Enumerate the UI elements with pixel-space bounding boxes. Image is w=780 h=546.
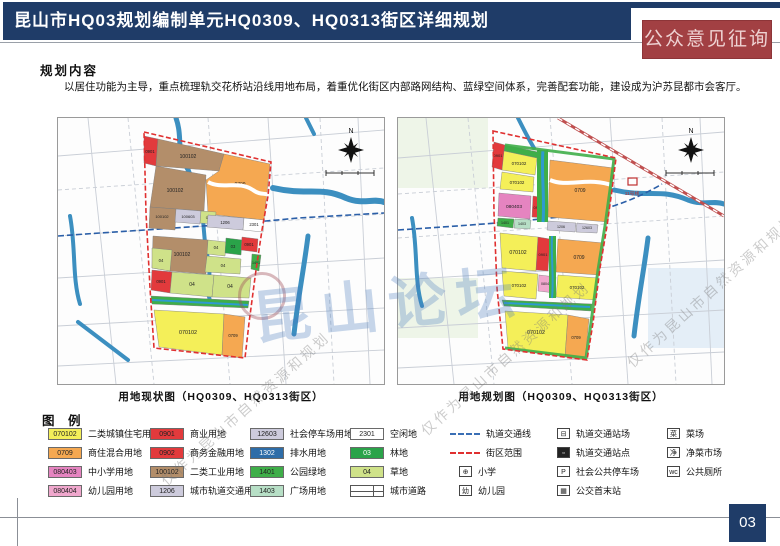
parcel-code: 100102	[174, 252, 191, 258]
legend-item: 幼幼儿园	[450, 481, 531, 500]
legend-label: 轨道交通线	[486, 427, 531, 440]
legend-item: 03林地	[350, 443, 426, 462]
footer-tick	[17, 498, 18, 546]
parcel-code: 070102	[509, 250, 526, 256]
legend-item: 080403中小学用地	[48, 462, 160, 481]
parcel-code: 1403	[518, 222, 526, 226]
parcel-code: 100102	[167, 188, 184, 194]
parcel-code: 080403	[506, 204, 522, 210]
parcel-code: 2301	[249, 222, 259, 227]
legend-item: 2301空闲地	[350, 424, 426, 443]
轨道交通站场-icon: ⊟	[557, 428, 570, 439]
legend-item: ⊕小学	[450, 462, 531, 481]
legend-label: 公交首末站	[576, 484, 621, 497]
parcel-code: 0901	[145, 149, 155, 154]
legend-label: 公共厕所	[686, 465, 722, 478]
legend-label: 社会停车场用地	[290, 427, 353, 440]
legend-label: 林地	[390, 446, 408, 459]
legend-item: ⊟轨道交通站场	[548, 424, 639, 443]
legend-column: ⊟轨道交通站场▫轨道交通站点P社会公共停车场▦公交首末站	[548, 424, 639, 500]
parcel-code: 0709	[573, 255, 584, 261]
section-title: 规划内容	[40, 60, 98, 79]
legend-swatch: 03	[350, 447, 384, 459]
landuse-current-map: 0901100102070910010210010210060304120623…	[57, 117, 385, 385]
parcel-code: 070102	[570, 285, 585, 290]
legend-swatch: 080403	[48, 466, 82, 478]
parcel-code: 070102	[179, 330, 197, 336]
north-label: N	[348, 128, 353, 135]
parcel-code: 04	[221, 263, 226, 268]
parcel-code: 1206	[220, 220, 230, 225]
legend-column: 2301空闲地03林地04草地城市道路	[350, 424, 426, 500]
legend-label: 中小学用地	[88, 465, 133, 478]
header-top-strip	[631, 2, 780, 8]
scale-bar	[326, 170, 374, 176]
legend-item: 0709商住混合用地	[48, 443, 160, 462]
rail-line-symbol	[450, 433, 480, 435]
legend-label: 商住混合用地	[88, 446, 142, 459]
legend-label: 空闲地	[390, 427, 417, 440]
parcel-code: 070102	[512, 283, 527, 288]
legend-item: 0901商业用地	[150, 424, 262, 443]
legend-swatch: 1206	[150, 485, 184, 497]
legend-item: ▦公交首末站	[548, 481, 639, 500]
legend-item: 070102二类城镇住宅用地	[48, 424, 160, 443]
parcel-code: 100102	[155, 214, 169, 219]
page-title: 昆山市HQ03规划编制单元HQ0309、HQ0313街区详细规划	[14, 2, 489, 40]
legend-item: 100102二类工业用地	[150, 462, 262, 481]
legend-column: 070102二类城镇住宅用地0709商住混合用地080403中小学用地08040…	[48, 424, 160, 500]
legend-label: 城市道路	[390, 484, 426, 497]
legend-swatch: 12603	[250, 428, 284, 440]
parcel-code: 0709	[574, 188, 585, 194]
parcel-code: 100603	[181, 214, 195, 219]
legend-label: 轨道交通站场	[576, 427, 630, 440]
parcel-code: 0901	[539, 252, 549, 257]
legend-swatch: 04	[350, 466, 384, 478]
parcel-code: 0901	[244, 242, 254, 247]
legend-swatch: 080404	[48, 485, 82, 497]
legend-label: 社会公共停车场	[576, 465, 639, 478]
legend-item: 净净菜市场	[658, 443, 722, 462]
footer-rule	[0, 517, 780, 518]
legend-item: 菜菜场	[658, 424, 722, 443]
legend-item: 12603社会停车场用地	[250, 424, 353, 443]
legend-label: 商业用地	[190, 427, 226, 440]
幼儿园-icon: 幼	[459, 485, 472, 496]
parcel-code: 0709	[571, 335, 581, 340]
public-comment-badge: 公众意见征询	[642, 20, 772, 59]
parcel-code: 1401	[501, 221, 509, 225]
legend-swatch: 0902	[150, 447, 184, 459]
legend-swatch: 1403	[250, 485, 284, 497]
page-number: 03	[729, 504, 766, 542]
legend-item: 1401公园绿地	[250, 462, 353, 481]
公共厕所-icon: wc	[667, 466, 680, 477]
legend-column: 0901商业用地0902商务金融用地100102二类工业用地1206城市轨道交通…	[150, 424, 262, 500]
legend-label: 街区范围	[486, 446, 522, 459]
legend-label: 幼儿园	[478, 484, 505, 497]
legend-swatch: 1302	[250, 447, 284, 459]
legend-item: 轨道交通线	[450, 424, 531, 443]
parcel-code: 1206	[557, 225, 565, 229]
legend-item: 街区范围	[450, 443, 531, 462]
小学-icon: ⊕	[459, 466, 472, 477]
社会公共停车场-icon: P	[557, 466, 570, 477]
legend-label: 排水用地	[290, 446, 326, 459]
legend-item: 1302排水用地	[250, 443, 353, 462]
metro-station-marker: 11号线	[625, 178, 640, 197]
parcel-code: 0709	[228, 333, 238, 338]
parcel-code: 100102	[180, 154, 197, 160]
legend-item: 0902商务金融用地	[150, 443, 262, 462]
公交首末站-icon: ▦	[557, 485, 570, 496]
legend-label: 公园绿地	[290, 465, 326, 478]
legend-swatch: 100102	[150, 466, 184, 478]
parcel-layer: 0901100102070910010210010210060304120623…	[144, 136, 270, 358]
legend-item: P社会公共停车场	[548, 462, 639, 481]
legend-item: 1206城市轨道交通用地	[150, 481, 262, 500]
parcel-code: 04	[159, 258, 164, 263]
caption-current-map: 用地现状图（HQ0309、HQ0313街区）	[57, 389, 385, 404]
legend-label: 商务金融用地	[190, 446, 244, 459]
caption-plan-map: 用地规划图（HQ0309、HQ0313街区）	[397, 389, 725, 404]
legend-item: ▫轨道交通站点	[548, 443, 639, 462]
legend-swatch: 0709	[48, 447, 82, 459]
north-compass: N	[678, 128, 704, 163]
parcel-code: 0901	[494, 153, 504, 158]
legend-swatch: 2301	[350, 428, 384, 440]
legend-item: 04草地	[350, 462, 426, 481]
legend-label: 草地	[390, 465, 408, 478]
legend-item: 1403广场用地	[250, 481, 353, 500]
parcel-code: 04	[214, 245, 219, 250]
legend-label: 幼儿园用地	[88, 484, 133, 497]
parcel-code: 12603	[582, 226, 592, 230]
legend-swatch: 1401	[250, 466, 284, 478]
legend-label: 净菜市场	[686, 446, 722, 459]
legend-label: 菜场	[686, 427, 704, 440]
legend-swatch: 0901	[150, 428, 184, 440]
section-body: 以居住功能为主导，重点梳理轨交花桥站沿线用地布局，着重优化街区内部路网结构、蓝绿…	[64, 80, 756, 95]
legend-label: 广场用地	[290, 484, 326, 497]
净菜市场-icon: 净	[667, 447, 680, 458]
landuse-plan-map: 0901070102070102080403090207091401140312…	[397, 117, 725, 385]
legend-label: 轨道交通站点	[576, 446, 630, 459]
轨道交通站点-icon: ▫	[557, 447, 570, 458]
parcel-code: 04	[227, 284, 233, 290]
parcel-code: 070102	[512, 161, 527, 166]
road-symbol-icon	[350, 485, 384, 497]
parcel-code: 1401	[252, 261, 260, 265]
metro-station-label: 11号线	[625, 190, 640, 197]
legend-swatch: 070102	[48, 428, 82, 440]
legend-item: 城市道路	[350, 481, 426, 500]
legend-item: 080404幼儿园用地	[48, 481, 160, 500]
parcel-code: 03	[231, 244, 236, 249]
parcel-code: 0901	[156, 279, 166, 284]
legend-column: 菜菜场净净菜市场wc公共厕所	[658, 424, 722, 481]
north-label: N	[688, 128, 693, 135]
legend-column: 轨道交通线街区范围⊕小学幼幼儿园	[450, 424, 531, 500]
parcel-code: 070102	[527, 330, 545, 336]
boundary-line-symbol	[450, 452, 480, 454]
legend-item: wc公共厕所	[658, 462, 722, 481]
parcel-code: 070102	[510, 180, 525, 185]
parcel-code: 04	[189, 282, 195, 288]
legend-label: 二类工业用地	[190, 465, 244, 478]
legend-label: 小学	[478, 465, 496, 478]
菜场-icon: 菜	[667, 428, 680, 439]
legend-column: 12603社会停车场用地1302排水用地1401公园绿地1403广场用地	[250, 424, 353, 500]
